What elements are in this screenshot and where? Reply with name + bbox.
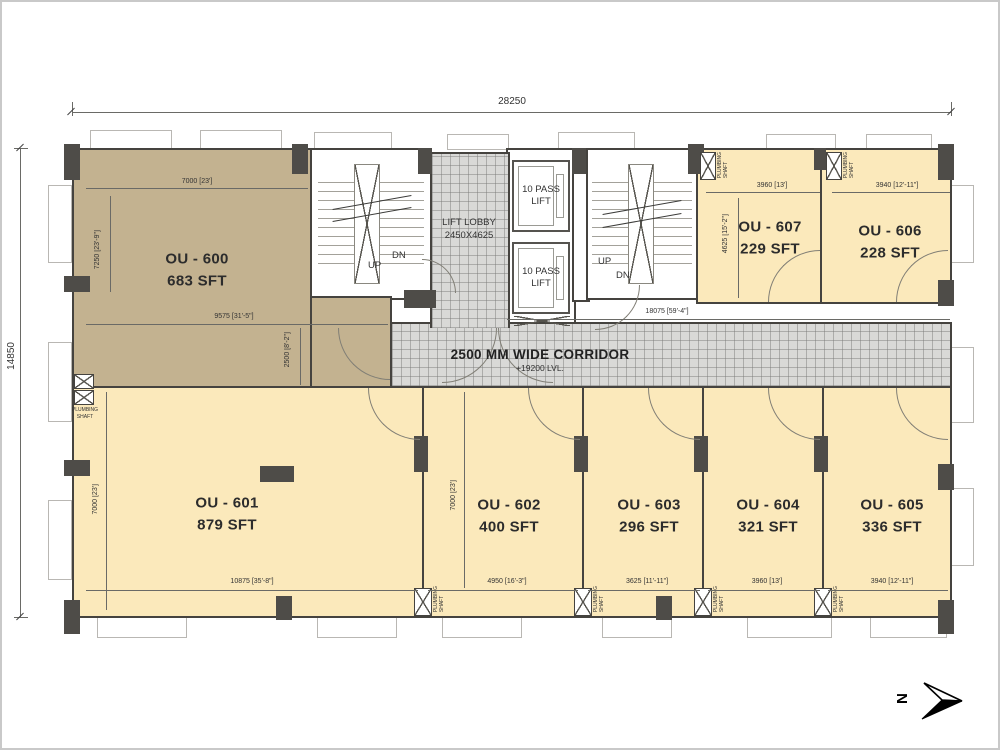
column (938, 600, 954, 634)
stair1-dn-label: DN (392, 250, 406, 261)
north-indicator: N (888, 674, 978, 728)
lift-lobby-label: LIFT LOBBY 2450X4625 (442, 217, 496, 243)
window-opening (97, 616, 187, 638)
window-opening (200, 130, 282, 150)
dimension-line (828, 590, 948, 591)
column (260, 466, 294, 482)
window-opening (90, 130, 172, 150)
column (938, 144, 954, 180)
stair1-up-label: UP (368, 260, 381, 271)
ou604-bottom-dim: 3960 [13'] (752, 578, 783, 585)
room-name: OU - 605 (860, 494, 923, 516)
dimension-line (428, 590, 578, 591)
dimension-line (832, 192, 950, 193)
column (64, 460, 90, 476)
room-area: 336 SFT (860, 516, 923, 538)
column (938, 464, 954, 490)
column (292, 144, 308, 174)
plumbing-shaft-box (574, 588, 592, 616)
plumbing-shaft-label: PLUMBINGSHAFT (844, 152, 856, 178)
north-arrow-icon (916, 678, 968, 724)
ou602-side-dim: 7000 [23'] (450, 480, 457, 511)
room-name: OU - 600 (165, 248, 228, 270)
room-name: OU - 604 (736, 494, 799, 516)
room-name: OU - 603 (617, 494, 680, 516)
corridor-title: 2500 MM WIDE CORRIDOR (451, 347, 630, 362)
corridor-level: +19200 LVL. (451, 363, 630, 373)
room-area: 400 SFT (477, 516, 540, 538)
window-opening (870, 616, 947, 638)
column (64, 144, 80, 180)
ou607-top-dim: 3960 [13'] (757, 182, 788, 189)
dimension-line (708, 590, 820, 591)
lift-lobby-name: LIFT LOBBY (442, 217, 496, 230)
column (276, 596, 292, 620)
column (64, 600, 80, 634)
room-ou-607-label: OU - 607 229 SFT (738, 216, 801, 260)
column (694, 436, 708, 472)
dimension-line (110, 196, 111, 292)
room-area: 228 SFT (858, 242, 921, 264)
plumbing-shaft-label: PLUMBING SHAFT (68, 407, 102, 420)
floor-plan-sheet: UP DN UP DN 10 PASS LIFT 10 PASS LIFT LI… (0, 0, 1000, 750)
window-opening (442, 616, 522, 638)
window-opening (317, 616, 397, 638)
plumbing-shaft-label: PLUMBINGSHAFT (718, 152, 730, 178)
lift-1: 10 PASS LIFT (512, 160, 570, 232)
room-area: 683 SFT (165, 270, 228, 292)
column (414, 436, 428, 472)
ou603-bottom-dim: 3625 [11'-11"] (626, 578, 668, 585)
stair2-up-label: UP (598, 256, 611, 267)
column (656, 596, 672, 620)
ou606-top-dim: 3940 [12'-11"] (876, 182, 919, 189)
room-area: 321 SFT (736, 516, 799, 538)
overall-width-dim: 28250 (498, 96, 526, 107)
column (64, 276, 90, 292)
plumbing-shaft-box (414, 588, 432, 616)
dimension-line (300, 328, 301, 385)
window-opening (48, 500, 72, 580)
ou607-side-dim: 4625 [15'-2"] (722, 214, 729, 253)
ou600-bottom-dim: 9575 [31'-5"] (214, 313, 253, 320)
dimension-line (72, 112, 952, 113)
room-ou-604-label: OU - 604 321 SFT (736, 494, 799, 538)
ou600-side-dim: 7250 [23'-9"] (94, 230, 101, 269)
lift-1-label: 10 PASS LIFT (518, 184, 564, 209)
stair-newel (628, 164, 654, 284)
plumbing-shaft-box (814, 588, 832, 616)
dimension-line (86, 590, 418, 591)
window-opening (950, 347, 974, 423)
room-ou-600-label: OU - 600 683 SFT (165, 248, 228, 292)
ou601-side-dim: 7000 [23'] (92, 484, 99, 515)
stair2-dn-label: DN (616, 270, 630, 281)
room-name: OU - 602 (477, 494, 540, 516)
ou600-top-dim: 7000 [23'] (182, 178, 213, 185)
dimension-line (86, 324, 388, 325)
dimension-line (86, 188, 308, 189)
dimension-line (507, 319, 950, 320)
column (814, 436, 828, 472)
ou605-bottom-dim: 3940 [12'-11"] (871, 578, 914, 585)
column (418, 148, 432, 174)
lift-2: 10 PASS LIFT (512, 242, 570, 314)
window-opening (950, 185, 974, 263)
ou602-bottom-dim: 4950 [16'-3"] (487, 578, 526, 585)
plumbing-shaft-box (700, 152, 716, 180)
room-area: 229 SFT (738, 238, 801, 260)
window-opening (48, 185, 72, 263)
room-name: OU - 607 (738, 216, 801, 238)
dimension-line (20, 148, 21, 618)
room-ou-602-label: OU - 602 400 SFT (477, 494, 540, 538)
room-name: OU - 606 (858, 220, 921, 242)
dimension-line (588, 590, 700, 591)
plumbing-shaft-line1: PLUMBING (68, 407, 102, 414)
dimension-line (706, 192, 820, 193)
plumbing-shaft-box (826, 152, 842, 180)
column (574, 436, 588, 472)
column (572, 148, 586, 174)
dimension-line (464, 392, 465, 588)
dimension-line (106, 392, 107, 610)
plumbing-shaft-line2: SHAFT (68, 414, 102, 421)
lift-2-label: 10 PASS LIFT (518, 266, 564, 291)
corridor-label: 2500 MM WIDE CORRIDOR +19200 LVL. (451, 347, 630, 373)
north-label: N (893, 693, 910, 704)
ou601-bottom-dim: 10875 [35'-8"] (230, 578, 273, 585)
corridor-dim: 18075 [59'-4"] (645, 308, 688, 315)
plumbing-shaft-box (74, 374, 94, 389)
room-ou-606-label: OU - 606 228 SFT (858, 220, 921, 264)
column (814, 148, 826, 170)
overall-height-dim: 14850 (6, 342, 17, 370)
plumbing-shaft-box (694, 588, 712, 616)
plumbing-shaft-box (74, 390, 94, 405)
room-area: 879 SFT (195, 514, 258, 536)
ou600-strip-dim: 2500 [8'-2"] (284, 332, 291, 367)
window-opening (747, 616, 832, 638)
lift-pit-hatch (514, 316, 570, 326)
room-ou-605-label: OU - 605 336 SFT (860, 494, 923, 538)
room-ou-603-label: OU - 603 296 SFT (617, 494, 680, 538)
room-area: 296 SFT (617, 516, 680, 538)
window-opening (950, 488, 974, 566)
window-opening (447, 134, 509, 150)
lift-lobby-size: 2450X4625 (442, 230, 496, 243)
room-ou-601-label: OU - 601 879 SFT (195, 492, 258, 536)
room-name: OU - 601 (195, 492, 258, 514)
